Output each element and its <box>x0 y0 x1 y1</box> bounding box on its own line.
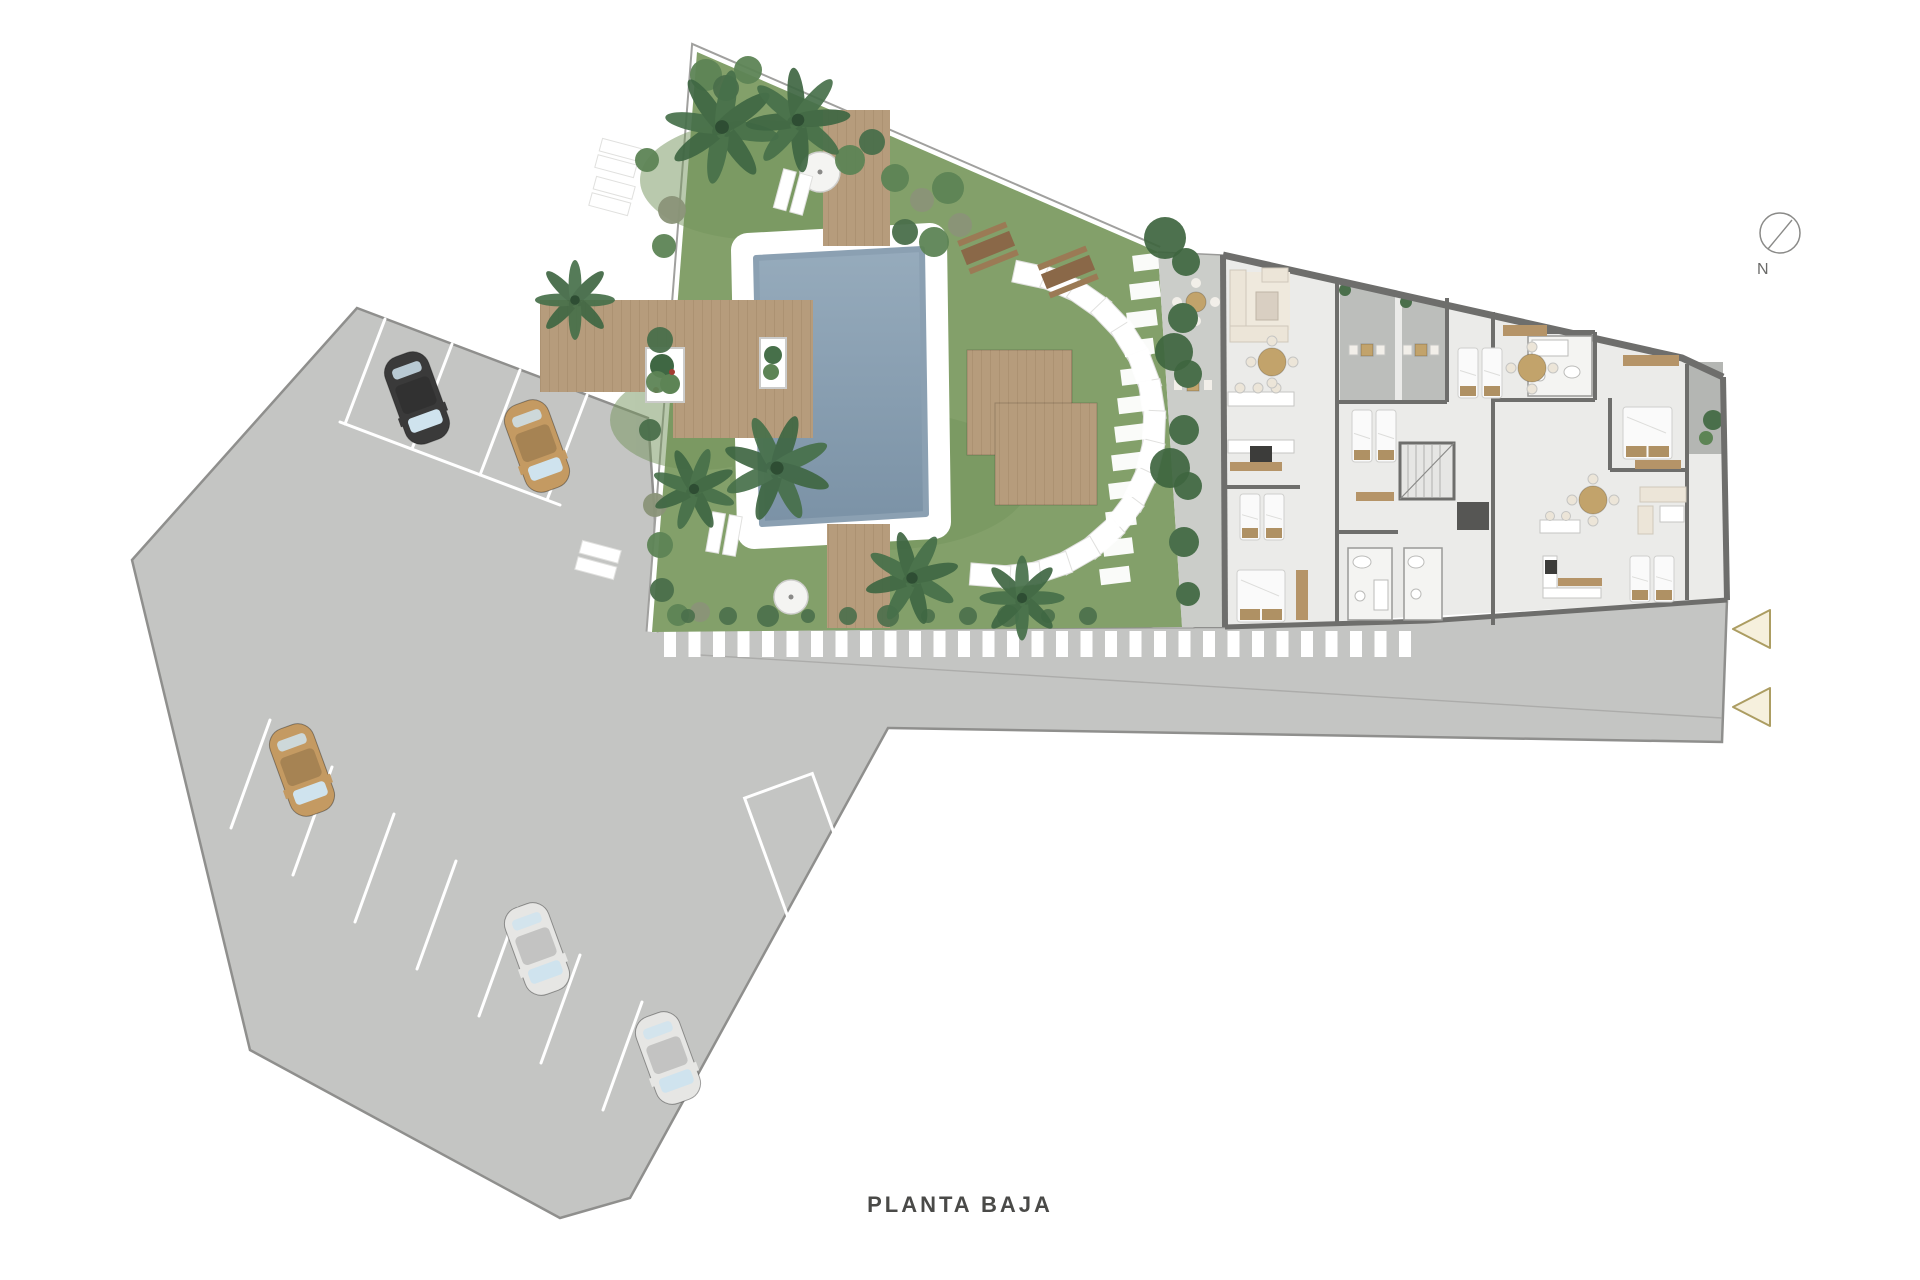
crosswalk-stripe <box>1228 631 1240 657</box>
dining-chair <box>1267 336 1277 346</box>
east-wall <box>1723 377 1727 600</box>
bush <box>646 371 668 393</box>
bed-pillow <box>1354 450 1370 460</box>
tree <box>1155 333 1193 371</box>
compass: N <box>1757 213 1800 278</box>
bush <box>647 327 673 353</box>
crosswalk-stripe <box>1032 631 1044 657</box>
bistro-table <box>1415 344 1427 356</box>
bush <box>639 419 661 441</box>
crosswalk-stripe <box>909 631 921 657</box>
crosswalk-stripe <box>689 631 701 657</box>
compass-circle <box>1760 213 1800 253</box>
bed-pillow <box>1649 446 1670 457</box>
palm-tree <box>980 556 1065 641</box>
crosswalk-stripe <box>811 631 823 657</box>
bush <box>652 234 676 258</box>
crosswalk-stripe <box>1056 631 1068 657</box>
dining-table <box>1518 354 1546 382</box>
crosswalk-stripe <box>1301 631 1313 657</box>
bush <box>910 188 934 212</box>
lounger-pair <box>595 138 641 177</box>
terrace-plant <box>1699 431 1713 445</box>
compass-north-label: N <box>1757 261 1769 278</box>
crosswalk-stripe <box>664 631 676 657</box>
bed-pillow <box>1460 386 1476 396</box>
dining-chair <box>1527 384 1537 394</box>
dining-chair <box>1609 495 1619 505</box>
hedge-bush <box>1169 527 1199 557</box>
entrance-arrow-icon <box>1733 688 1770 726</box>
crosswalk-stripe <box>1154 631 1166 657</box>
bistro-chair <box>1430 345 1439 355</box>
crosswalk-stripe <box>762 631 774 657</box>
crosswalk-stripe <box>738 631 750 657</box>
site-plan-drawing: N PLANTA BAJA <box>0 0 1920 1280</box>
bush <box>647 532 673 558</box>
crosswalk-stripe <box>836 631 848 657</box>
bush <box>839 607 857 625</box>
apartment-building <box>1223 255 1727 627</box>
crosswalk-stripe <box>1081 631 1093 657</box>
bed-pillow <box>1378 450 1394 460</box>
crosswalk-stripe <box>1350 631 1362 657</box>
bistro-chair <box>1376 345 1385 355</box>
bistro-table <box>1361 344 1373 356</box>
crosswalk-stripe <box>1252 631 1264 657</box>
palm-tree <box>535 260 615 340</box>
bush <box>948 213 972 237</box>
crosswalk-stripe <box>787 631 799 657</box>
bush <box>892 219 918 245</box>
bush <box>734 56 762 84</box>
west-wall <box>1223 255 1225 627</box>
crosswalk-stripe <box>1130 631 1142 657</box>
dining-table <box>1258 348 1286 376</box>
bed-pillow <box>1484 386 1500 396</box>
lounger-pair <box>589 176 635 215</box>
dining-chair <box>1267 378 1277 388</box>
bush <box>835 145 865 175</box>
bed-pillow <box>1656 590 1672 600</box>
bush <box>919 227 949 257</box>
entrance-arrows <box>1733 610 1770 726</box>
hedge-bush <box>1168 303 1198 333</box>
bed-pillow <box>1240 609 1260 620</box>
crosswalk-stripe <box>1375 631 1387 657</box>
terrace-1 <box>1340 281 1395 400</box>
crosswalk-stripe <box>1326 631 1338 657</box>
hedge-bush <box>1176 582 1200 606</box>
crosswalk-stripe <box>1203 631 1215 657</box>
living-room-1 <box>1230 268 1290 342</box>
bed-pillow <box>1242 528 1258 538</box>
bistro-chair <box>1349 345 1358 355</box>
bathroom-1 <box>1348 548 1392 620</box>
bed-pillow <box>1626 446 1647 457</box>
bush <box>658 196 686 224</box>
bush <box>959 607 977 625</box>
stairwell <box>1400 443 1454 499</box>
crosswalk-stripe <box>1007 631 1019 657</box>
bush <box>932 172 964 204</box>
bush <box>801 609 815 623</box>
bush <box>881 164 909 192</box>
bush <box>757 605 779 627</box>
bush <box>859 129 885 155</box>
elevator-core <box>1457 502 1489 530</box>
crosswalk-stripe <box>860 631 872 657</box>
bed-pillow <box>1262 609 1282 620</box>
crosswalk-stripe <box>1399 631 1411 657</box>
dining-chair <box>1527 342 1537 352</box>
crosswalk-stripe <box>1277 631 1289 657</box>
bush <box>719 607 737 625</box>
crosswalk-stripe <box>1105 631 1117 657</box>
dining-chair <box>1288 357 1298 367</box>
bathroom-3 <box>1404 548 1442 620</box>
bush <box>650 578 674 602</box>
dining-chair <box>1506 363 1516 373</box>
dining-chair <box>1548 363 1558 373</box>
bush <box>635 148 659 172</box>
hedge-bush <box>1169 415 1199 445</box>
plan-title: PLANTA BAJA <box>867 1192 1053 1217</box>
crosswalk-stripe <box>934 631 946 657</box>
bush <box>681 609 695 623</box>
dining-table <box>1579 486 1607 514</box>
dining-chair <box>1246 357 1256 367</box>
terrace-plant <box>1703 410 1723 430</box>
bush <box>1079 607 1097 625</box>
crosswalk-stripe <box>983 631 995 657</box>
crosswalk-stripe <box>713 631 725 657</box>
crosswalk-stripe <box>885 631 897 657</box>
dining-chair <box>1567 495 1577 505</box>
dining-chair <box>1588 516 1598 526</box>
bed-pillow <box>1266 528 1282 538</box>
tree <box>1150 448 1190 488</box>
crosswalk-stripe <box>958 631 970 657</box>
bistro-chair <box>1403 345 1412 355</box>
crosswalk-stripe <box>1179 631 1191 657</box>
dining-chair <box>1588 474 1598 484</box>
bed-pillow <box>1632 590 1648 600</box>
tree <box>1144 217 1186 259</box>
entrance-arrow-icon <box>1733 610 1770 648</box>
floor-plan-page: N PLANTA BAJA <box>0 0 1920 1280</box>
